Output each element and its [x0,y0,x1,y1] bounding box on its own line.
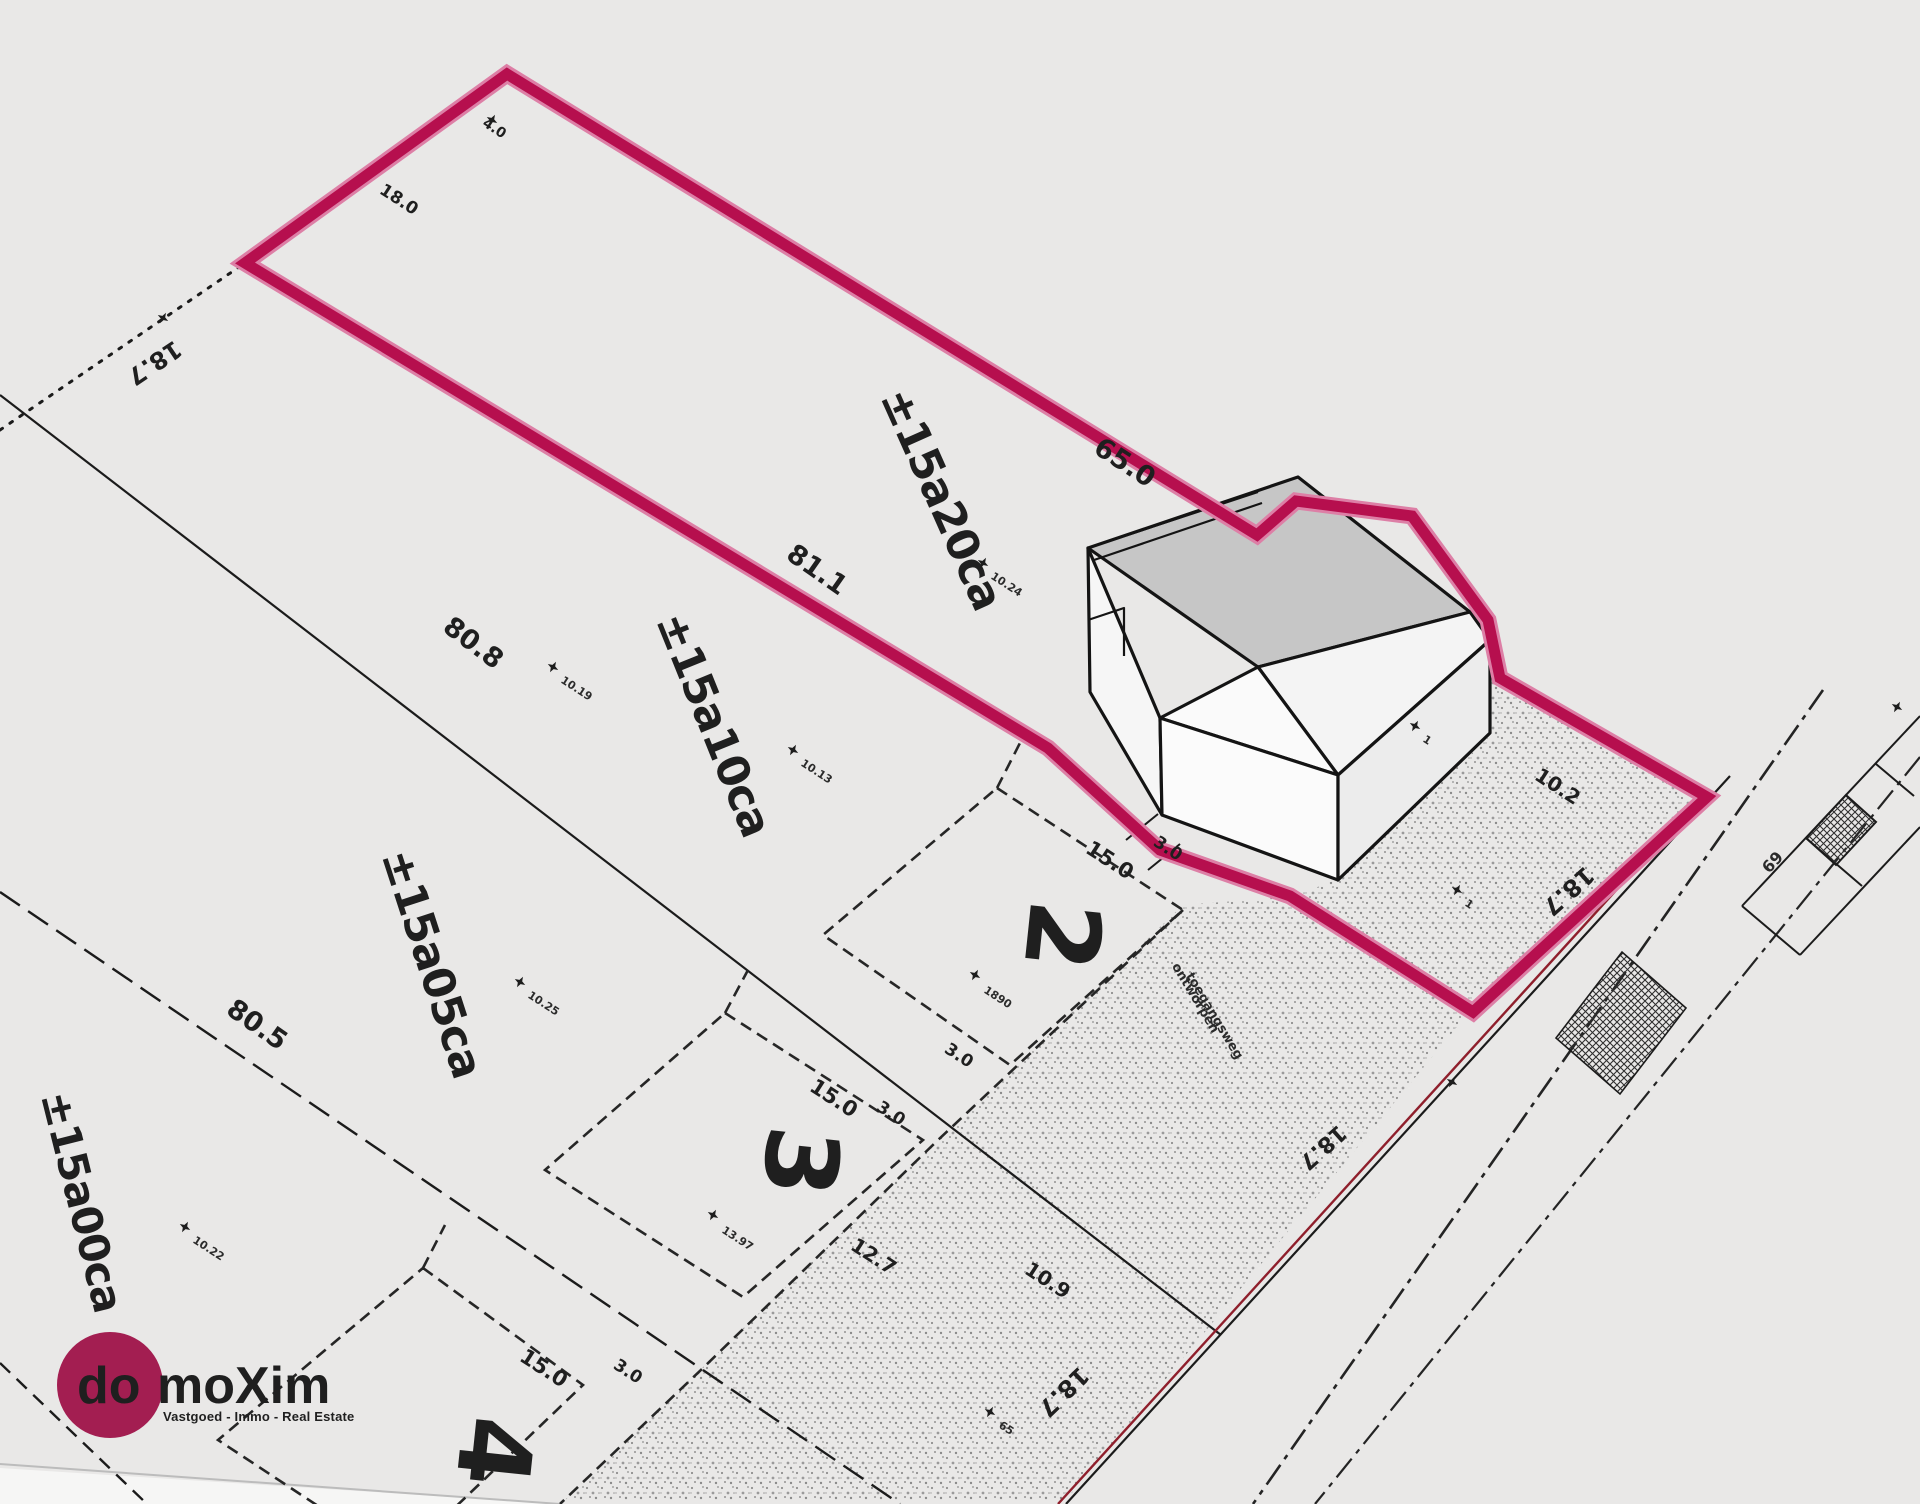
plot-number-2: 2 [1000,895,1124,976]
plot-number-4: 4 [432,1411,556,1492]
plot-number-3: 3 [738,1121,862,1202]
plot-plan-image: 65.0 81.1 80.8 80.5 ±15a20ca ±15a10ca ±1… [0,0,1920,1504]
logo-text-do: do [77,1357,141,1415]
logo-text-moxim: moXim [157,1357,330,1415]
site-plan-svg: 65.0 81.1 80.8 80.5 ±15a20ca ±15a10ca ±1… [0,0,1920,1504]
logo-tagline: Vastgoed - Immo - Real Estate [163,1409,354,1424]
